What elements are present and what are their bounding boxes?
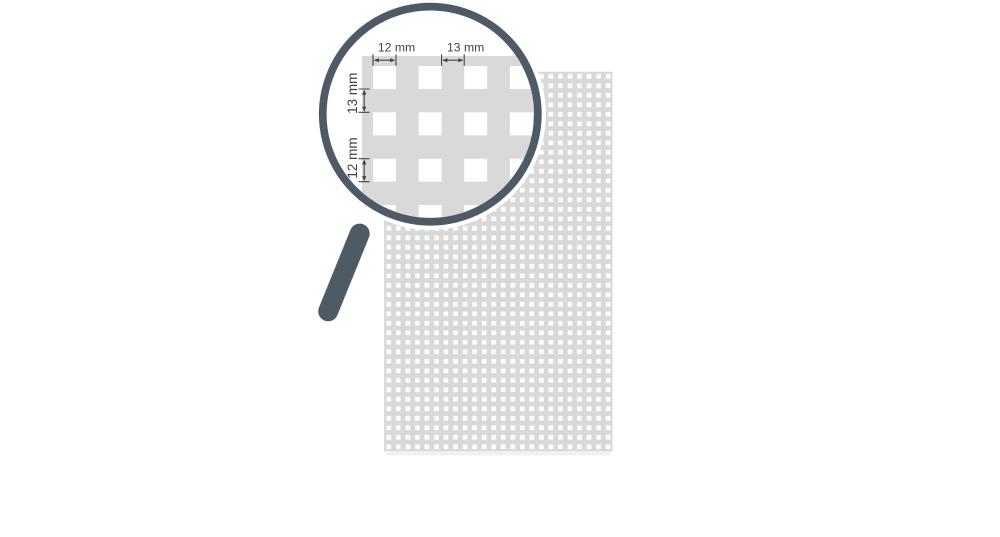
svg-text:13 mm: 13 mm <box>345 73 360 114</box>
svg-text:12 mm: 12 mm <box>345 137 360 178</box>
svg-text:12 mm: 12 mm <box>378 41 415 55</box>
svg-text:13 mm: 13 mm <box>447 41 484 55</box>
